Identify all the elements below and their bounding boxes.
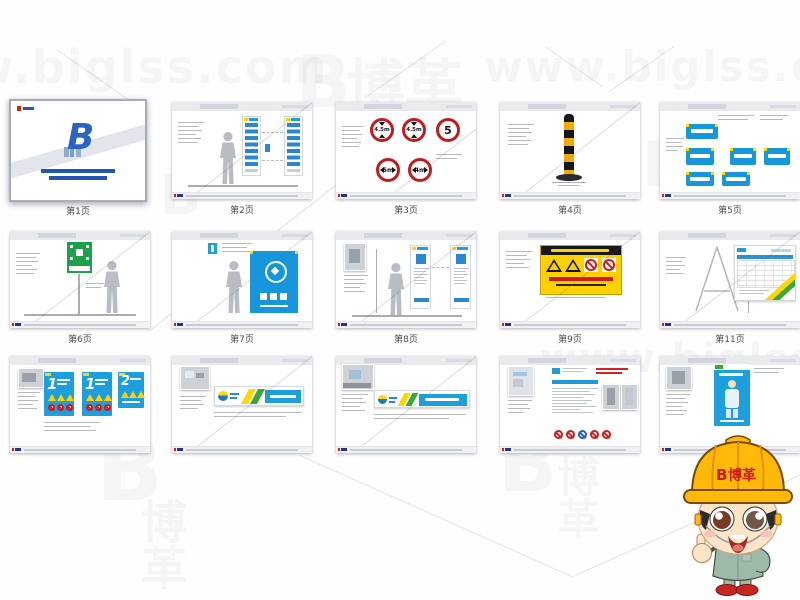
slide-header — [660, 231, 800, 240]
slide-header — [500, 356, 640, 365]
text-line-placeholder — [666, 269, 680, 270]
mascot-pocket — [742, 554, 751, 561]
slide-thumbnail-3[interactable]: 4.5m 4.5m 5 5m 4m — [336, 102, 476, 199]
slide-header — [172, 356, 312, 365]
brand-logo-mark — [218, 391, 228, 401]
slide-footer — [336, 192, 476, 199]
text-line-placeholder — [552, 409, 580, 410]
slide-thumbnail-13[interactable] — [336, 356, 476, 453]
prohibition-icon — [602, 430, 611, 439]
text-line-placeholder — [718, 119, 748, 120]
text-line-placeholder — [718, 115, 754, 116]
mascot-fist — [693, 544, 712, 563]
text-line-placeholder — [342, 398, 363, 399]
text-line-placeholder — [666, 398, 686, 399]
text-line-placeholder — [760, 115, 788, 116]
text-line-placeholder — [508, 144, 528, 145]
mascot-tongue — [733, 545, 744, 552]
text-line-placeholder — [563, 368, 587, 369]
prohibition-icon — [590, 430, 599, 439]
text-line-placeholder — [342, 410, 365, 411]
site-photo — [180, 366, 210, 390]
text-line-placeholder — [86, 287, 101, 288]
note-text-block — [754, 368, 784, 376]
text-line-placeholder — [222, 251, 250, 252]
text-line-placeholder — [180, 404, 204, 405]
text-line-placeholder — [508, 124, 534, 125]
text-line-placeholder — [454, 268, 469, 269]
blue-area-sign — [730, 148, 756, 165]
text-line-placeholder — [16, 269, 37, 270]
page-caption-1: 第1页 — [9, 204, 147, 217]
text-line-placeholder — [666, 414, 684, 415]
text-line-placeholder — [508, 400, 532, 401]
mascot-hat-logo-letter: B — [716, 466, 727, 484]
text-line-placeholder — [16, 257, 36, 258]
slide-footer — [660, 192, 800, 199]
text-line-placeholder — [508, 412, 524, 413]
slide-thumbnail-8[interactable] — [336, 231, 476, 328]
human-silhouette — [102, 261, 122, 313]
spec-text-block — [508, 124, 534, 148]
text-line-placeholder — [739, 293, 764, 294]
title-text-line — [41, 169, 115, 173]
slide-header — [500, 102, 640, 111]
text-line-placeholder — [506, 255, 527, 256]
slide-footer — [660, 321, 800, 328]
spec-text-block — [344, 275, 368, 295]
text-line-placeholder — [178, 126, 199, 127]
text-line-placeholder — [552, 388, 598, 389]
text-line-placeholder — [18, 396, 36, 397]
blue-area-sign — [722, 172, 750, 186]
text-line-placeholder — [454, 280, 467, 281]
text-line-placeholder — [16, 273, 34, 274]
slide-thumbnail-4[interactable] — [500, 102, 640, 199]
text-line-placeholder — [666, 142, 681, 143]
spec-text-block — [178, 122, 204, 146]
red-note-line — [596, 368, 628, 370]
spec-text-block — [666, 138, 684, 154]
dimension-line — [376, 249, 377, 313]
text-line-placeholder — [18, 404, 33, 405]
ground-line — [552, 182, 586, 183]
text-line-placeholder — [86, 283, 104, 284]
mascot-blush — [704, 531, 716, 538]
spec-text-block — [180, 396, 206, 412]
text-line-placeholder — [44, 426, 90, 427]
blue-area-sign — [686, 124, 718, 139]
text-line-placeholder — [44, 430, 96, 431]
text-line-placeholder — [344, 283, 366, 284]
mascot-blush — [760, 531, 772, 538]
text-line-placeholder — [178, 122, 204, 123]
text-line-placeholder — [508, 136, 526, 137]
spec-text-block — [342, 394, 368, 414]
slide-sorter-canvas: www.biglss.com B博革 www.biglss.com www.bi… — [0, 0, 800, 600]
note-text-block — [760, 115, 788, 123]
spec-text-block — [18, 392, 40, 412]
slide-thumbnail-12[interactable] — [172, 356, 312, 453]
spec-text-block — [666, 257, 686, 277]
text-line-placeholder — [508, 128, 529, 129]
prohibition-icon — [566, 430, 575, 439]
site-photo — [18, 368, 44, 388]
spec-text-block — [342, 126, 364, 150]
slide-footer — [10, 446, 150, 453]
text-line-placeholder — [666, 138, 684, 139]
slide-footer — [10, 321, 150, 328]
blue-area-sign — [686, 148, 714, 165]
watermark-brand-text: 博革 — [128, 498, 194, 590]
text-line-placeholder — [180, 408, 198, 409]
spec-text-block — [506, 251, 532, 271]
rule-poster-3: 2 — [118, 372, 144, 408]
text-line-placeholder — [214, 412, 302, 413]
text-line-placeholder — [552, 391, 590, 392]
text-line-placeholder — [666, 150, 678, 151]
text-line-placeholder — [374, 418, 449, 419]
subtitle-text-line — [49, 176, 107, 180]
speed-limit-sign: 5 — [436, 118, 460, 142]
text-line-placeholder — [342, 134, 362, 135]
text-line-placeholder — [180, 400, 201, 401]
watermark-url-text: www.biglss.com — [0, 40, 328, 94]
text-line-placeholder — [666, 273, 684, 274]
ppe-dress-code-poster — [714, 364, 750, 426]
text-line-placeholder — [666, 261, 682, 262]
text-line-placeholder — [16, 261, 38, 262]
text-line-placeholder — [180, 396, 206, 397]
slide-thumbnail-7[interactable] — [172, 231, 312, 328]
detail-photo — [602, 384, 620, 410]
text-line-placeholder — [563, 371, 583, 372]
text-line-placeholder — [508, 132, 532, 133]
text-line-placeholder — [506, 267, 529, 268]
slide-thumbnail-11[interactable]: 1 1 2 — [10, 356, 150, 453]
sign-pole — [78, 274, 80, 314]
text-line-placeholder — [18, 392, 40, 393]
text-line-placeholder — [344, 279, 364, 280]
text-line-placeholder — [666, 402, 688, 403]
text-line-placeholder — [178, 130, 202, 131]
note-text-block — [374, 414, 466, 422]
text-line-placeholder — [454, 277, 464, 278]
text-line-placeholder — [16, 265, 32, 266]
text-line-placeholder — [178, 138, 201, 139]
note-text-block — [44, 422, 100, 434]
text-line-placeholder — [508, 408, 530, 409]
slide-header — [500, 231, 640, 240]
slide-header — [336, 102, 476, 111]
slide-footer — [500, 321, 640, 328]
mascot-strap-knob — [695, 514, 701, 525]
width-limit-sign: 5m — [376, 158, 400, 182]
detail-photo — [621, 384, 638, 410]
site-photo — [508, 366, 534, 396]
dimension-text-block — [86, 283, 104, 291]
sign-panel — [284, 116, 303, 176]
text-line-placeholder — [222, 243, 252, 244]
sign-panel — [242, 116, 261, 176]
page-caption-5: 第5页 — [660, 203, 800, 216]
slide-footer — [500, 192, 640, 199]
emblem-letter: B — [67, 117, 94, 158]
doc-logo-chip — [552, 368, 560, 374]
text-line-placeholder — [454, 274, 468, 275]
page-caption-2: 第2页 — [172, 203, 312, 216]
text-line-placeholder — [666, 257, 686, 258]
text-line-placeholder — [436, 154, 462, 155]
doc-title-block — [563, 368, 587, 374]
text-line-placeholder — [414, 280, 427, 281]
height-limit-sign: 4.5m — [370, 118, 394, 142]
page-caption-4: 第4页 — [500, 203, 640, 216]
slide-header — [10, 356, 150, 365]
doc-heading-bar — [552, 380, 598, 384]
slide-thumbnail-14[interactable] — [500, 356, 640, 453]
deck-logo-mark — [17, 106, 21, 111]
slide-header — [10, 231, 150, 240]
text-line-placeholder — [454, 283, 465, 284]
company-b-emblem: B — [61, 121, 97, 161]
mascot-shoe — [716, 585, 738, 596]
text-line-placeholder — [342, 394, 368, 395]
slide-header — [172, 102, 312, 111]
text-line-placeholder — [666, 265, 685, 266]
text-line-placeholder — [342, 126, 364, 127]
text-line-placeholder — [552, 403, 587, 404]
red-note-line — [596, 372, 622, 374]
label-text-block — [558, 185, 580, 189]
slide-header — [660, 102, 800, 111]
slide-thumbnail-1[interactable]: B — [9, 99, 147, 202]
text-line-placeholder — [552, 397, 583, 398]
text-line-placeholder — [508, 140, 531, 141]
slide-thumbnail-10[interactable] — [660, 231, 800, 328]
small-blue-sign — [208, 243, 217, 254]
text-line-placeholder — [666, 410, 687, 411]
prohibition-icon — [554, 430, 563, 439]
text-line-placeholder — [666, 146, 683, 147]
text-line-placeholder — [552, 400, 592, 401]
text-line-placeholder — [754, 368, 784, 369]
text-line-placeholder — [18, 408, 37, 409]
text-line-placeholder — [754, 372, 779, 373]
text-line-placeholder — [739, 290, 769, 291]
text-line-placeholder — [552, 406, 596, 407]
slide-footer — [336, 446, 476, 453]
mascot-shoe — [736, 585, 758, 596]
text-line-placeholder — [552, 394, 595, 395]
text-line-placeholder — [508, 404, 528, 405]
human-silhouette — [218, 132, 238, 184]
text-line-placeholder — [414, 283, 425, 284]
text-line-placeholder — [342, 402, 366, 403]
site-photo — [344, 243, 366, 271]
page-caption-9: 第9页 — [500, 332, 640, 345]
assembly-point-sign — [66, 241, 93, 274]
blue-area-sign — [764, 148, 790, 165]
page-caption-3: 第3页 — [336, 203, 476, 216]
text-line-placeholder — [374, 414, 466, 415]
watermark-brand-text: 博革 — [545, 455, 606, 539]
text-line-placeholder — [552, 412, 593, 413]
text-line-placeholder — [342, 130, 360, 131]
spec-text-block — [16, 253, 40, 277]
slide-footer — [500, 446, 640, 453]
slide-header — [172, 231, 312, 240]
brand-logo-mark — [378, 395, 387, 404]
note-text-block — [222, 243, 252, 255]
inspection-form — [734, 245, 796, 301]
rule-poster-2: 1 — [82, 372, 112, 416]
text-line-placeholder — [760, 119, 783, 120]
text-line-placeholder — [214, 416, 286, 417]
text-line-placeholder — [342, 142, 361, 143]
page-caption-7: 第7页 — [172, 332, 312, 345]
page-caption-6: 第6页 — [10, 332, 150, 345]
text-line-placeholder — [344, 275, 368, 276]
text-line-placeholder — [16, 253, 40, 254]
slide-header — [336, 231, 476, 240]
spec-text-block — [666, 394, 690, 418]
height-limit-sign: 4.5m — [402, 118, 426, 142]
rule-poster-1: 1 — [44, 372, 74, 416]
text-line-placeholder — [344, 291, 365, 292]
blue-area-sign — [686, 172, 714, 186]
text-line-placeholder — [342, 138, 357, 139]
text-line-placeholder — [666, 394, 690, 395]
text-line-placeholder — [454, 271, 466, 272]
page-caption-8: 第8页 — [336, 332, 476, 345]
page-caption-10: 第11页 — [660, 332, 800, 345]
text-line-placeholder — [506, 259, 530, 260]
text-line-placeholder — [44, 422, 100, 423]
slide-footer — [172, 192, 312, 199]
text-line-placeholder — [178, 134, 196, 135]
text-line-placeholder — [222, 247, 247, 248]
slide-footer — [336, 321, 476, 328]
text-line-placeholder — [178, 142, 198, 143]
text-line-placeholder — [558, 185, 580, 186]
text-line-placeholder — [342, 146, 359, 147]
text-line-placeholder — [342, 406, 360, 407]
slide-footer — [172, 446, 312, 453]
text-line-placeholder — [344, 287, 360, 288]
mascot-hat-brand-text: 博革 — [728, 467, 756, 484]
slide-thumbnail-6[interactable] — [10, 231, 150, 328]
slide-thumbnail-2[interactable] — [172, 102, 312, 199]
bollard-base — [556, 174, 582, 181]
slide-thumbnail-5[interactable] — [660, 102, 800, 199]
mascot-strap-knob — [775, 514, 781, 525]
slide-footer — [172, 321, 312, 328]
brand-mascot-worker: B 博革 — [676, 420, 800, 600]
slide-thumbnail-9[interactable] — [500, 231, 640, 328]
small-sign — [265, 144, 270, 152]
note-text-block — [718, 115, 754, 123]
sign-panel — [450, 245, 471, 309]
note-text-block — [214, 412, 302, 420]
text-line-placeholder — [666, 406, 682, 407]
deck-logo-text — [23, 107, 34, 110]
text-line-placeholder — [506, 263, 524, 264]
hazard-warning-board — [540, 245, 622, 295]
spec-text-block — [508, 400, 532, 416]
text-line-placeholder — [506, 251, 532, 252]
site-photo — [666, 366, 692, 390]
doc-body-text — [552, 388, 598, 415]
striped-bollard — [564, 114, 574, 176]
sign-panel — [410, 245, 431, 309]
mascot-hat-brim — [684, 490, 792, 503]
text-line-placeholder — [18, 400, 38, 401]
mandatory-icon — [578, 430, 587, 439]
site-photo — [342, 364, 374, 390]
